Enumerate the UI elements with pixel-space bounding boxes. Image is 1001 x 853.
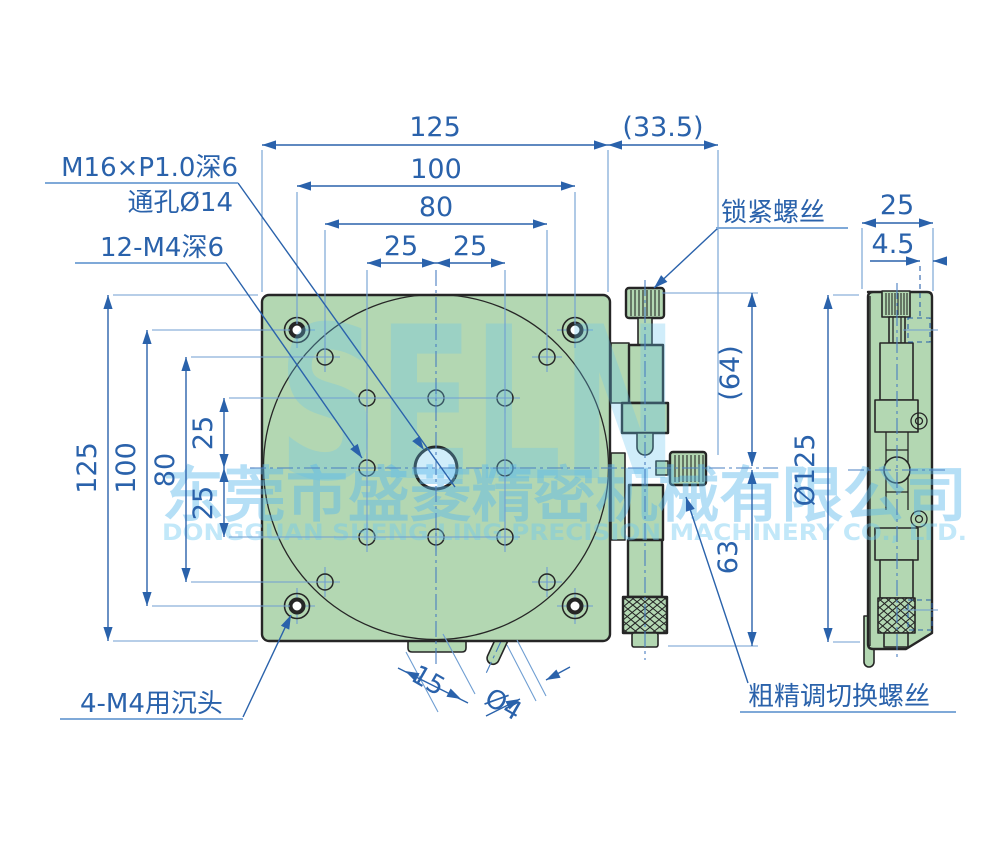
dim-side-25: 25 [880, 190, 914, 221]
arrowhead-icon [262, 140, 276, 149]
arrowhead-icon [446, 689, 463, 704]
label-12-m4-holes: 12-M4深6 [100, 233, 224, 263]
arrowhead-icon [181, 357, 190, 371]
arrowhead-icon [933, 256, 947, 265]
arrowhead-icon [862, 218, 876, 227]
arrowhead-icon [594, 140, 608, 149]
arrowhead-icon [704, 140, 718, 149]
dim-left-80: 80 [150, 453, 181, 487]
dim-left-125: 125 [72, 442, 103, 494]
label-lock-screw: 锁紧螺丝 [721, 198, 825, 228]
arrowhead-icon [533, 219, 547, 228]
arrowhead-icon [367, 258, 381, 267]
dim-pin-dia-4: Ø4 [479, 683, 526, 727]
dim-side-4-5: 4.5 [872, 229, 915, 260]
label-thread-spec: M16×P1.0深6 [61, 153, 238, 183]
watermark-company-en: DONGGUAN SHENG LING PRECISION MACHINERY … [162, 521, 967, 546]
label-switch-screw: 粗精调切换螺丝 [748, 682, 930, 712]
arrowhead-icon [823, 628, 832, 642]
arrowhead-icon [747, 632, 756, 646]
arrowhead-icon [181, 568, 190, 582]
watermark: SELN 东莞市盛菱精密机械有限公司 DONGGUAN SHENG LING P… [162, 281, 967, 546]
dim-top-25-right: 25 [453, 231, 487, 262]
technical-drawing-canvas: SELN 东莞市盛菱精密机械有限公司 DONGGUAN SHENG LING P… [0, 0, 1001, 853]
arrowhead-icon [491, 258, 505, 267]
arrowhead-icon [544, 670, 561, 685]
dim-top-100: 100 [410, 154, 462, 185]
arrowhead-icon [919, 218, 933, 227]
arrowhead-icon [436, 258, 450, 267]
dim-right-64: (64) [715, 345, 746, 400]
label-counterbore: 4-M4用沉头 [80, 689, 223, 719]
dim-top-125: 125 [409, 112, 461, 143]
dim-left-25-upper: 25 [188, 416, 219, 450]
dim-side-dia-125: Ø125 [790, 434, 821, 507]
arrowhead-icon [747, 293, 756, 307]
dim-left-100: 100 [111, 442, 142, 494]
arrowhead-icon [297, 181, 311, 190]
dim-right-63: 63 [713, 540, 744, 574]
arrowhead-icon [142, 592, 151, 606]
dim-top-80: 80 [419, 192, 453, 223]
dim-top-33-5: (33.5) [622, 112, 703, 143]
label-through-hole: 通孔Ø14 [127, 188, 233, 218]
dim-left-25-lower: 25 [188, 486, 219, 520]
arrowhead-icon [219, 398, 228, 412]
arrowhead-icon [422, 258, 436, 267]
arrowhead-icon [561, 181, 575, 190]
counterbore-inner [569, 600, 582, 613]
arrowhead-icon [103, 295, 112, 309]
arrowhead-icon [142, 330, 151, 344]
dim-pin-15: 15 [406, 660, 450, 703]
arrowhead-icon [325, 219, 339, 228]
counterbore-inner [291, 600, 304, 613]
arrowhead-icon [103, 627, 112, 641]
dim-top-25-left: 25 [384, 231, 418, 262]
arrowhead-icon [608, 140, 622, 149]
arrowhead-icon [823, 295, 832, 309]
